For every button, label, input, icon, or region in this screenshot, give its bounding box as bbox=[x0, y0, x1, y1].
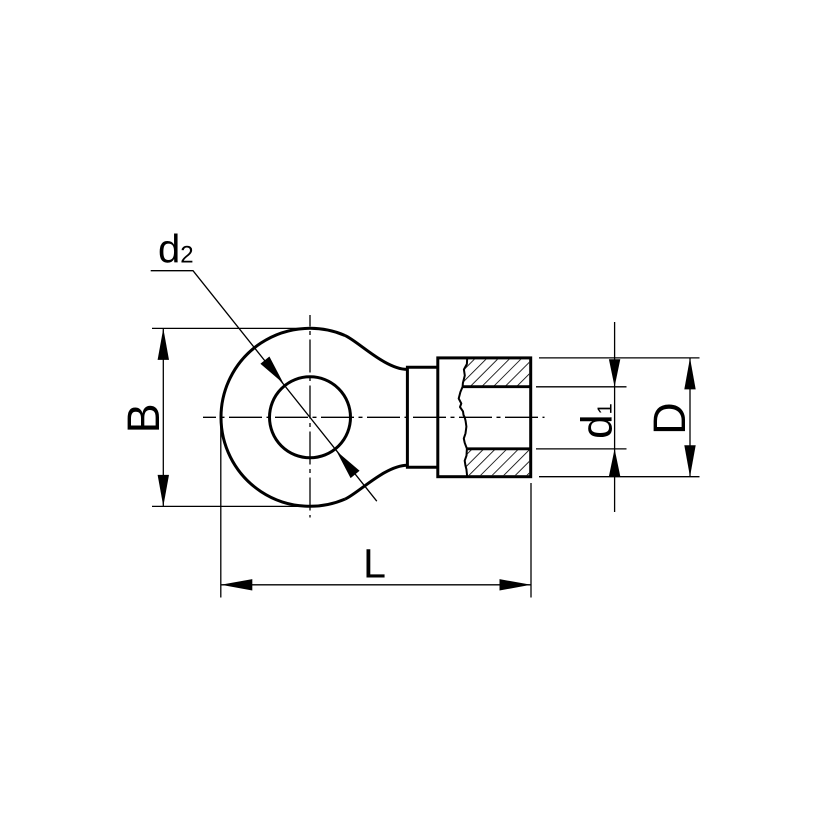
svg-text:L: L bbox=[363, 541, 386, 587]
svg-text:B: B bbox=[118, 403, 169, 433]
svg-text:D: D bbox=[644, 402, 695, 435]
